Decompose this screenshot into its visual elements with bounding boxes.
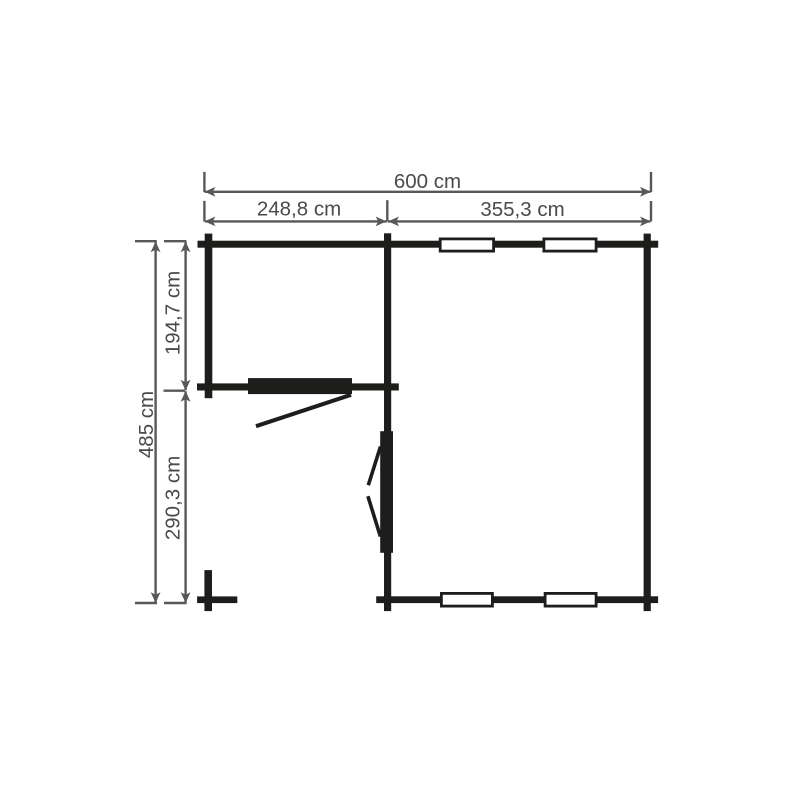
svg-text:290,3 cm: 290,3 cm (162, 456, 185, 540)
svg-text:600 cm: 600 cm (394, 170, 461, 193)
svg-text:194,7 cm: 194,7 cm (162, 271, 185, 355)
svg-text:485 cm: 485 cm (135, 391, 158, 458)
svg-text:248,8 cm: 248,8 cm (257, 198, 341, 221)
svg-text:355,3 cm: 355,3 cm (480, 198, 564, 221)
